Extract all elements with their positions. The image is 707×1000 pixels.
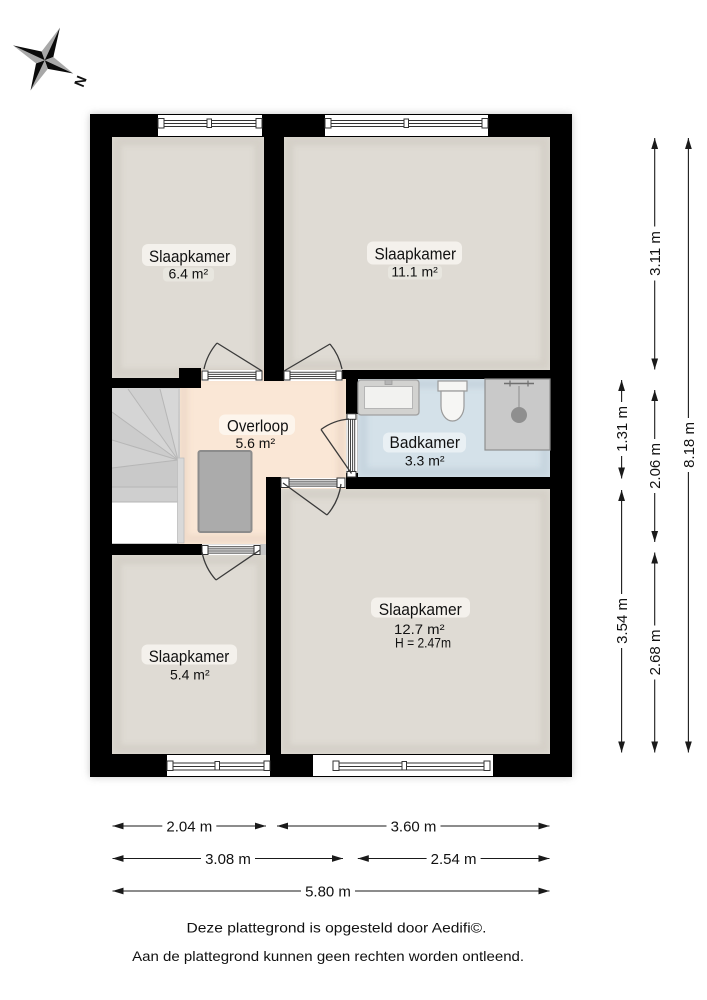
svg-text:2.68 m: 2.68 m — [647, 630, 664, 676]
svg-text:Slaapkamer: Slaapkamer — [149, 647, 230, 666]
svg-text:5.80 m: 5.80 m — [305, 883, 351, 900]
svg-text:3.60 m: 3.60 m — [391, 818, 437, 835]
svg-text:Aan de plattegrond kunnen geen: Aan de plattegrond kunnen geen rechten w… — [132, 948, 524, 964]
svg-text:2.06 m: 2.06 m — [647, 443, 664, 489]
svg-text:Badkamer: Badkamer — [390, 433, 461, 452]
svg-text:6.4 m²: 6.4 m² — [168, 266, 208, 282]
svg-text:11.1 m²: 11.1 m² — [391, 264, 438, 280]
svg-text:3.54 m: 3.54 m — [614, 598, 631, 644]
svg-text:H = 2.47m: H = 2.47m — [395, 635, 451, 651]
svg-text:1.31 m: 1.31 m — [614, 406, 631, 452]
svg-text:2.54 m: 2.54 m — [431, 851, 477, 868]
svg-text:3.08 m: 3.08 m — [205, 851, 251, 868]
svg-text:3.11 m: 3.11 m — [647, 231, 664, 276]
svg-text:5.4 m²: 5.4 m² — [170, 667, 210, 683]
svg-text:2.04 m: 2.04 m — [166, 818, 212, 835]
svg-text:8.18 m: 8.18 m — [681, 422, 698, 468]
svg-text:5.6 m²: 5.6 m² — [235, 435, 275, 451]
svg-text:Overloop: Overloop — [227, 417, 289, 436]
svg-text:3.3 m²: 3.3 m² — [405, 453, 445, 469]
svg-text:Slaapkamer: Slaapkamer — [375, 245, 457, 264]
svg-text:Deze plattegrond is opgesteld: Deze plattegrond is opgesteld door Aedif… — [187, 919, 487, 935]
svg-text:Slaapkamer: Slaapkamer — [149, 247, 230, 266]
svg-text:Slaapkamer: Slaapkamer — [379, 600, 462, 619]
